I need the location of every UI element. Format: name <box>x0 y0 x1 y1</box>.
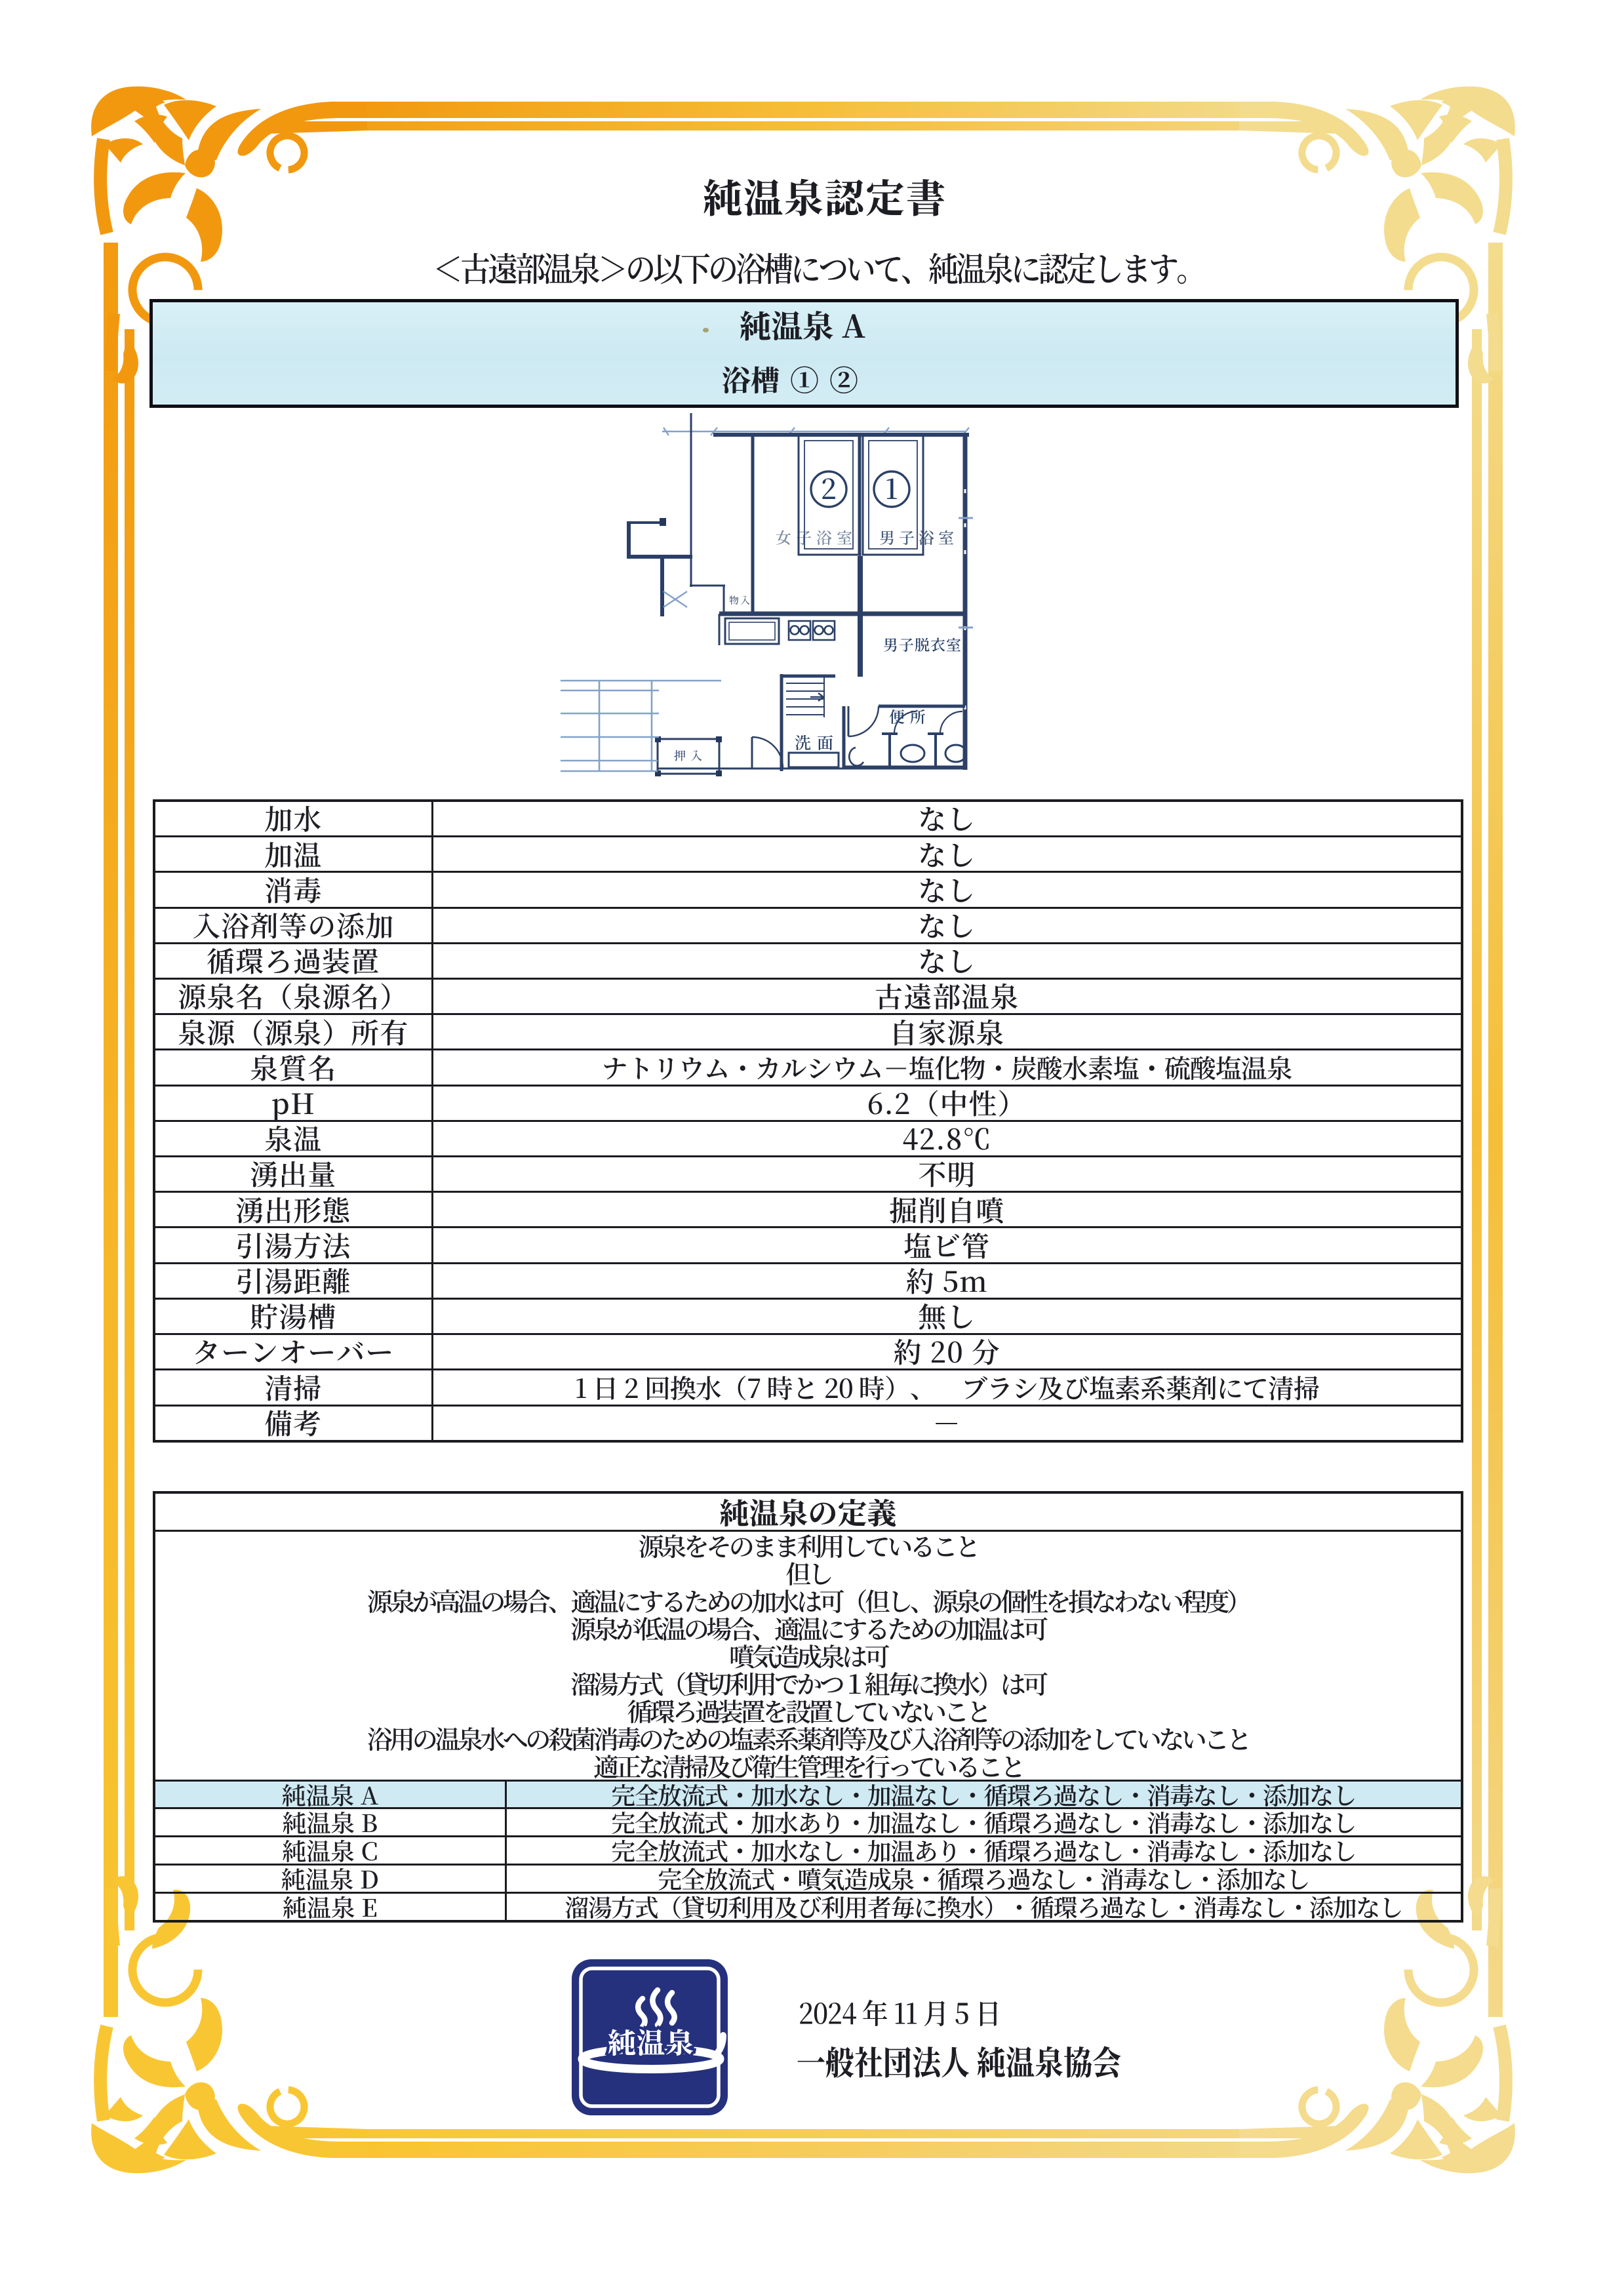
svg-text:純温泉: 純温泉 <box>608 2022 694 2062</box>
svg-text:押入: 押入 <box>674 747 707 764</box>
svg-text:男子脱衣室: 男子脱衣室 <box>883 633 962 655</box>
svg-text:1: 1 <box>885 468 898 508</box>
svg-text:洗面: 洗面 <box>795 730 839 754</box>
svg-text:物入: 物入 <box>729 593 751 607</box>
svg-text:便所: 便所 <box>889 704 931 727</box>
svg-text:2: 2 <box>821 468 837 508</box>
svg-text:女子浴室: 女子浴室 <box>776 525 857 548</box>
svg-text:男子浴室: 男子浴室 <box>879 525 958 548</box>
